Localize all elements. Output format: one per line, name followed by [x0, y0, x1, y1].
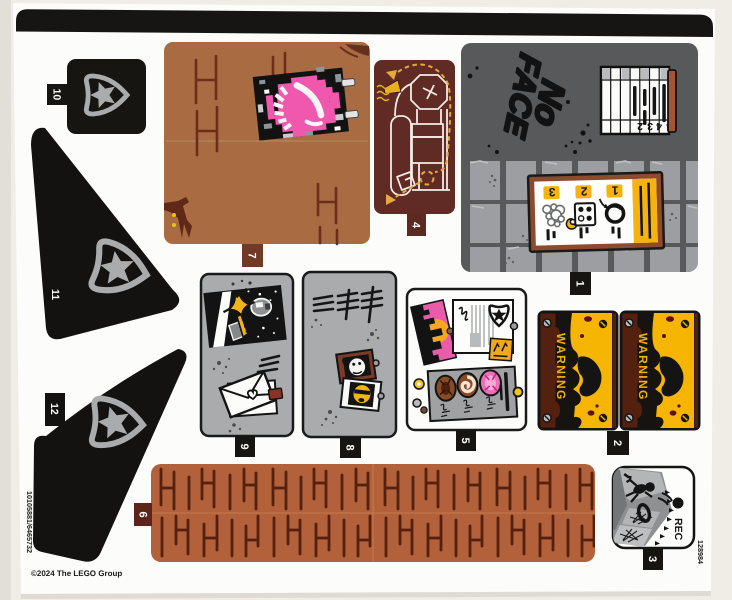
- svg-text:9: 9: [238, 444, 250, 450]
- svg-text:4: 4: [410, 222, 422, 229]
- svg-text:11: 11: [49, 289, 61, 300]
- svg-text:3: 3: [646, 556, 658, 562]
- svg-text:1: 1: [611, 183, 618, 197]
- svg-text:5: 5: [459, 438, 471, 444]
- svg-text:7: 7: [246, 253, 258, 259]
- svg-text:2: 2: [611, 440, 623, 446]
- svg-text:128984: 128984: [696, 540, 705, 564]
- svg-text:2: 2: [637, 120, 643, 132]
- svg-text:10: 10: [51, 89, 63, 101]
- svg-text:2: 2: [580, 184, 587, 198]
- svg-text:REC: REC: [672, 518, 684, 541]
- svg-text:1: 1: [574, 281, 586, 287]
- svg-text:©2024 The LEGO Group: ©2024 The LEGO Group: [31, 569, 122, 578]
- svg-text:10105881/6465732: 10105881/6465732: [25, 491, 34, 553]
- svg-text:4: 4: [656, 120, 662, 132]
- svg-text:8: 8: [344, 445, 356, 451]
- svg-text:12: 12: [48, 403, 60, 415]
- svg-text:3: 3: [647, 120, 653, 132]
- svg-text:6: 6: [137, 512, 149, 518]
- svg-text:3: 3: [548, 185, 555, 199]
